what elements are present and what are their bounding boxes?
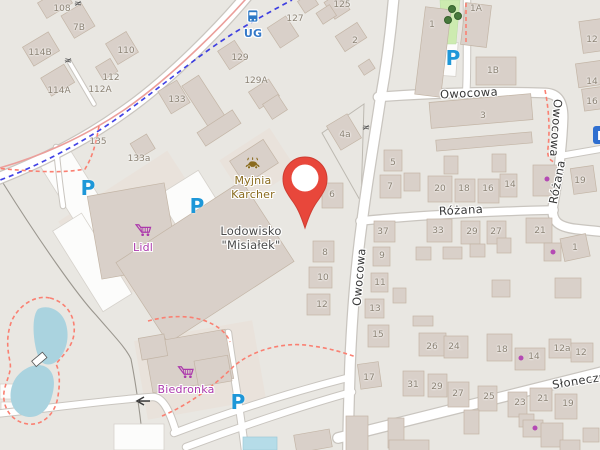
housenumber-label: 26 (426, 342, 437, 352)
housenumber-label: 7B (73, 23, 85, 33)
gate-icon: ≠ (63, 55, 74, 68)
housenumber-label: 23 (514, 398, 525, 408)
housenumber-label: 29 (466, 227, 477, 237)
housenumber-label: 5 (390, 158, 396, 168)
poi-lidl-label: Lidl (133, 241, 153, 254)
poi-ice-rink: Lodowisko "Misiałek" (220, 224, 281, 252)
street-label-owocowa: Owocowa (440, 84, 499, 101)
poi-biedronka: Biedronka (157, 364, 214, 396)
housenumber-label: 14 (528, 352, 539, 362)
housenumber-label: 8 (322, 248, 328, 258)
poi-car-wash-line1: Myjnia (231, 174, 275, 188)
poi-car-wash: Myjnia Karcher (231, 155, 275, 202)
housenumber-label: 12 (586, 35, 597, 45)
housenumber-label: 133a (128, 154, 151, 164)
housenumber-label: 127 (286, 14, 303, 24)
housenumber-label: 15 (372, 330, 383, 340)
shopping-cart-icon (135, 222, 152, 237)
housenumber-label: 2 (352, 36, 358, 46)
tree-icon (454, 12, 462, 20)
poi-ice-rink-line2: "Misiałek" (220, 238, 281, 252)
street-label-owocowa: Owocowa (547, 99, 565, 158)
shopping-cart-icon (178, 364, 195, 379)
housenumber-label: 12 (316, 300, 327, 310)
housenumber-label: 108 (53, 4, 70, 14)
poi-biedronka-label: Biedronka (157, 383, 214, 396)
housenumber-label: 4a (339, 130, 350, 140)
shop-dot-icon (551, 250, 556, 255)
poi-bus-stop-label: UG (244, 27, 262, 40)
housenumber-label: 33 (432, 226, 443, 236)
housenumber-label: 3 (480, 111, 486, 121)
housenumber-label: 18 (496, 345, 507, 355)
parking-icon: P (81, 176, 96, 200)
housenumber-label: 7 (387, 182, 393, 192)
housenumber-label: 27 (452, 389, 463, 399)
housenumber-label: 114B (28, 48, 51, 58)
poi-car-wash-line2: Karcher (231, 188, 275, 202)
housenumber-label: 16 (482, 184, 493, 194)
housenumber-label: 1B (487, 66, 499, 76)
gate-icon: ≠ (73, 0, 83, 10)
housenumber-label: 110 (117, 46, 134, 56)
bus-stop-icon (247, 9, 259, 23)
parking-icon: P (446, 46, 461, 70)
housenumber-label: 29 (431, 382, 442, 392)
car-wash-icon (244, 157, 261, 170)
housenumber-label: 114A (47, 86, 70, 96)
housenumber-label: 112A (88, 85, 111, 95)
poi-bus-stop: UG (244, 8, 262, 40)
housenumber-label: 17 (363, 373, 374, 383)
housenumber-label: 19 (562, 399, 573, 409)
housenumber-label: 1 (429, 20, 435, 30)
housenumber-label: 13 (369, 304, 380, 314)
housenumber-label: 112 (102, 73, 119, 83)
housenumber-label: 25 (483, 392, 494, 402)
housenumber-label: 21 (534, 226, 545, 236)
housenumber-label: 10 (317, 273, 328, 283)
housenumber-label: 16 (586, 97, 597, 107)
housenumber-label: 19 (574, 176, 585, 186)
street-label-różana: Różana (546, 159, 568, 205)
street-label-różana: Różana (438, 202, 483, 218)
street-label-owocowa: Owocowa (349, 247, 368, 306)
housenumber-label: 9 (379, 251, 385, 261)
housenumber-label: 129A (244, 76, 267, 86)
housenumber-label: 6 (329, 190, 335, 200)
parking-icon: P (231, 390, 246, 414)
housenumber-label: 21 (537, 394, 548, 404)
shop-dot-icon (533, 426, 538, 431)
housenumber-label: 12 (575, 348, 586, 358)
housenumber-label: 133 (168, 95, 185, 105)
housenumber-label: 135 (89, 137, 106, 147)
housenumber-label: 18 (458, 184, 469, 194)
housenumber-label: 1 (572, 243, 578, 253)
map-labels-layer: Lidl Biedronka Myjnia Karcher Lodowisko … (0, 0, 600, 450)
map-canvas[interactable]: P Lidl Biedronka Myjnia Karcher Lodowisk… (0, 0, 600, 450)
housenumber-label: 12a (554, 344, 571, 354)
parking-icon: P (190, 194, 205, 218)
tree-icon (444, 16, 452, 24)
shop-dot-icon (545, 177, 550, 182)
housenumber-label: 14 (504, 180, 515, 190)
housenumber-label: 24 (448, 342, 459, 352)
housenumber-label: 37 (377, 227, 388, 237)
housenumber-label: 20 (434, 184, 445, 194)
housenumber-label: 27 (490, 227, 501, 237)
tree-icon (448, 5, 456, 13)
poi-lidl: Lidl (133, 222, 153, 254)
housenumber-label: 14 (586, 77, 597, 87)
shop-dot-icon (519, 356, 524, 361)
poi-ice-rink-line1: Lodowisko (220, 224, 281, 238)
housenumber-label: 125 (333, 0, 350, 10)
housenumber-label: 11 (374, 278, 385, 288)
housenumber-label: 129 (231, 53, 248, 63)
gate-icon: ≠ (361, 122, 371, 134)
housenumber-label: 31 (407, 380, 418, 390)
housenumber-label: 1A (470, 4, 482, 14)
street-label-słoneczna: Słoneczna (551, 368, 600, 392)
